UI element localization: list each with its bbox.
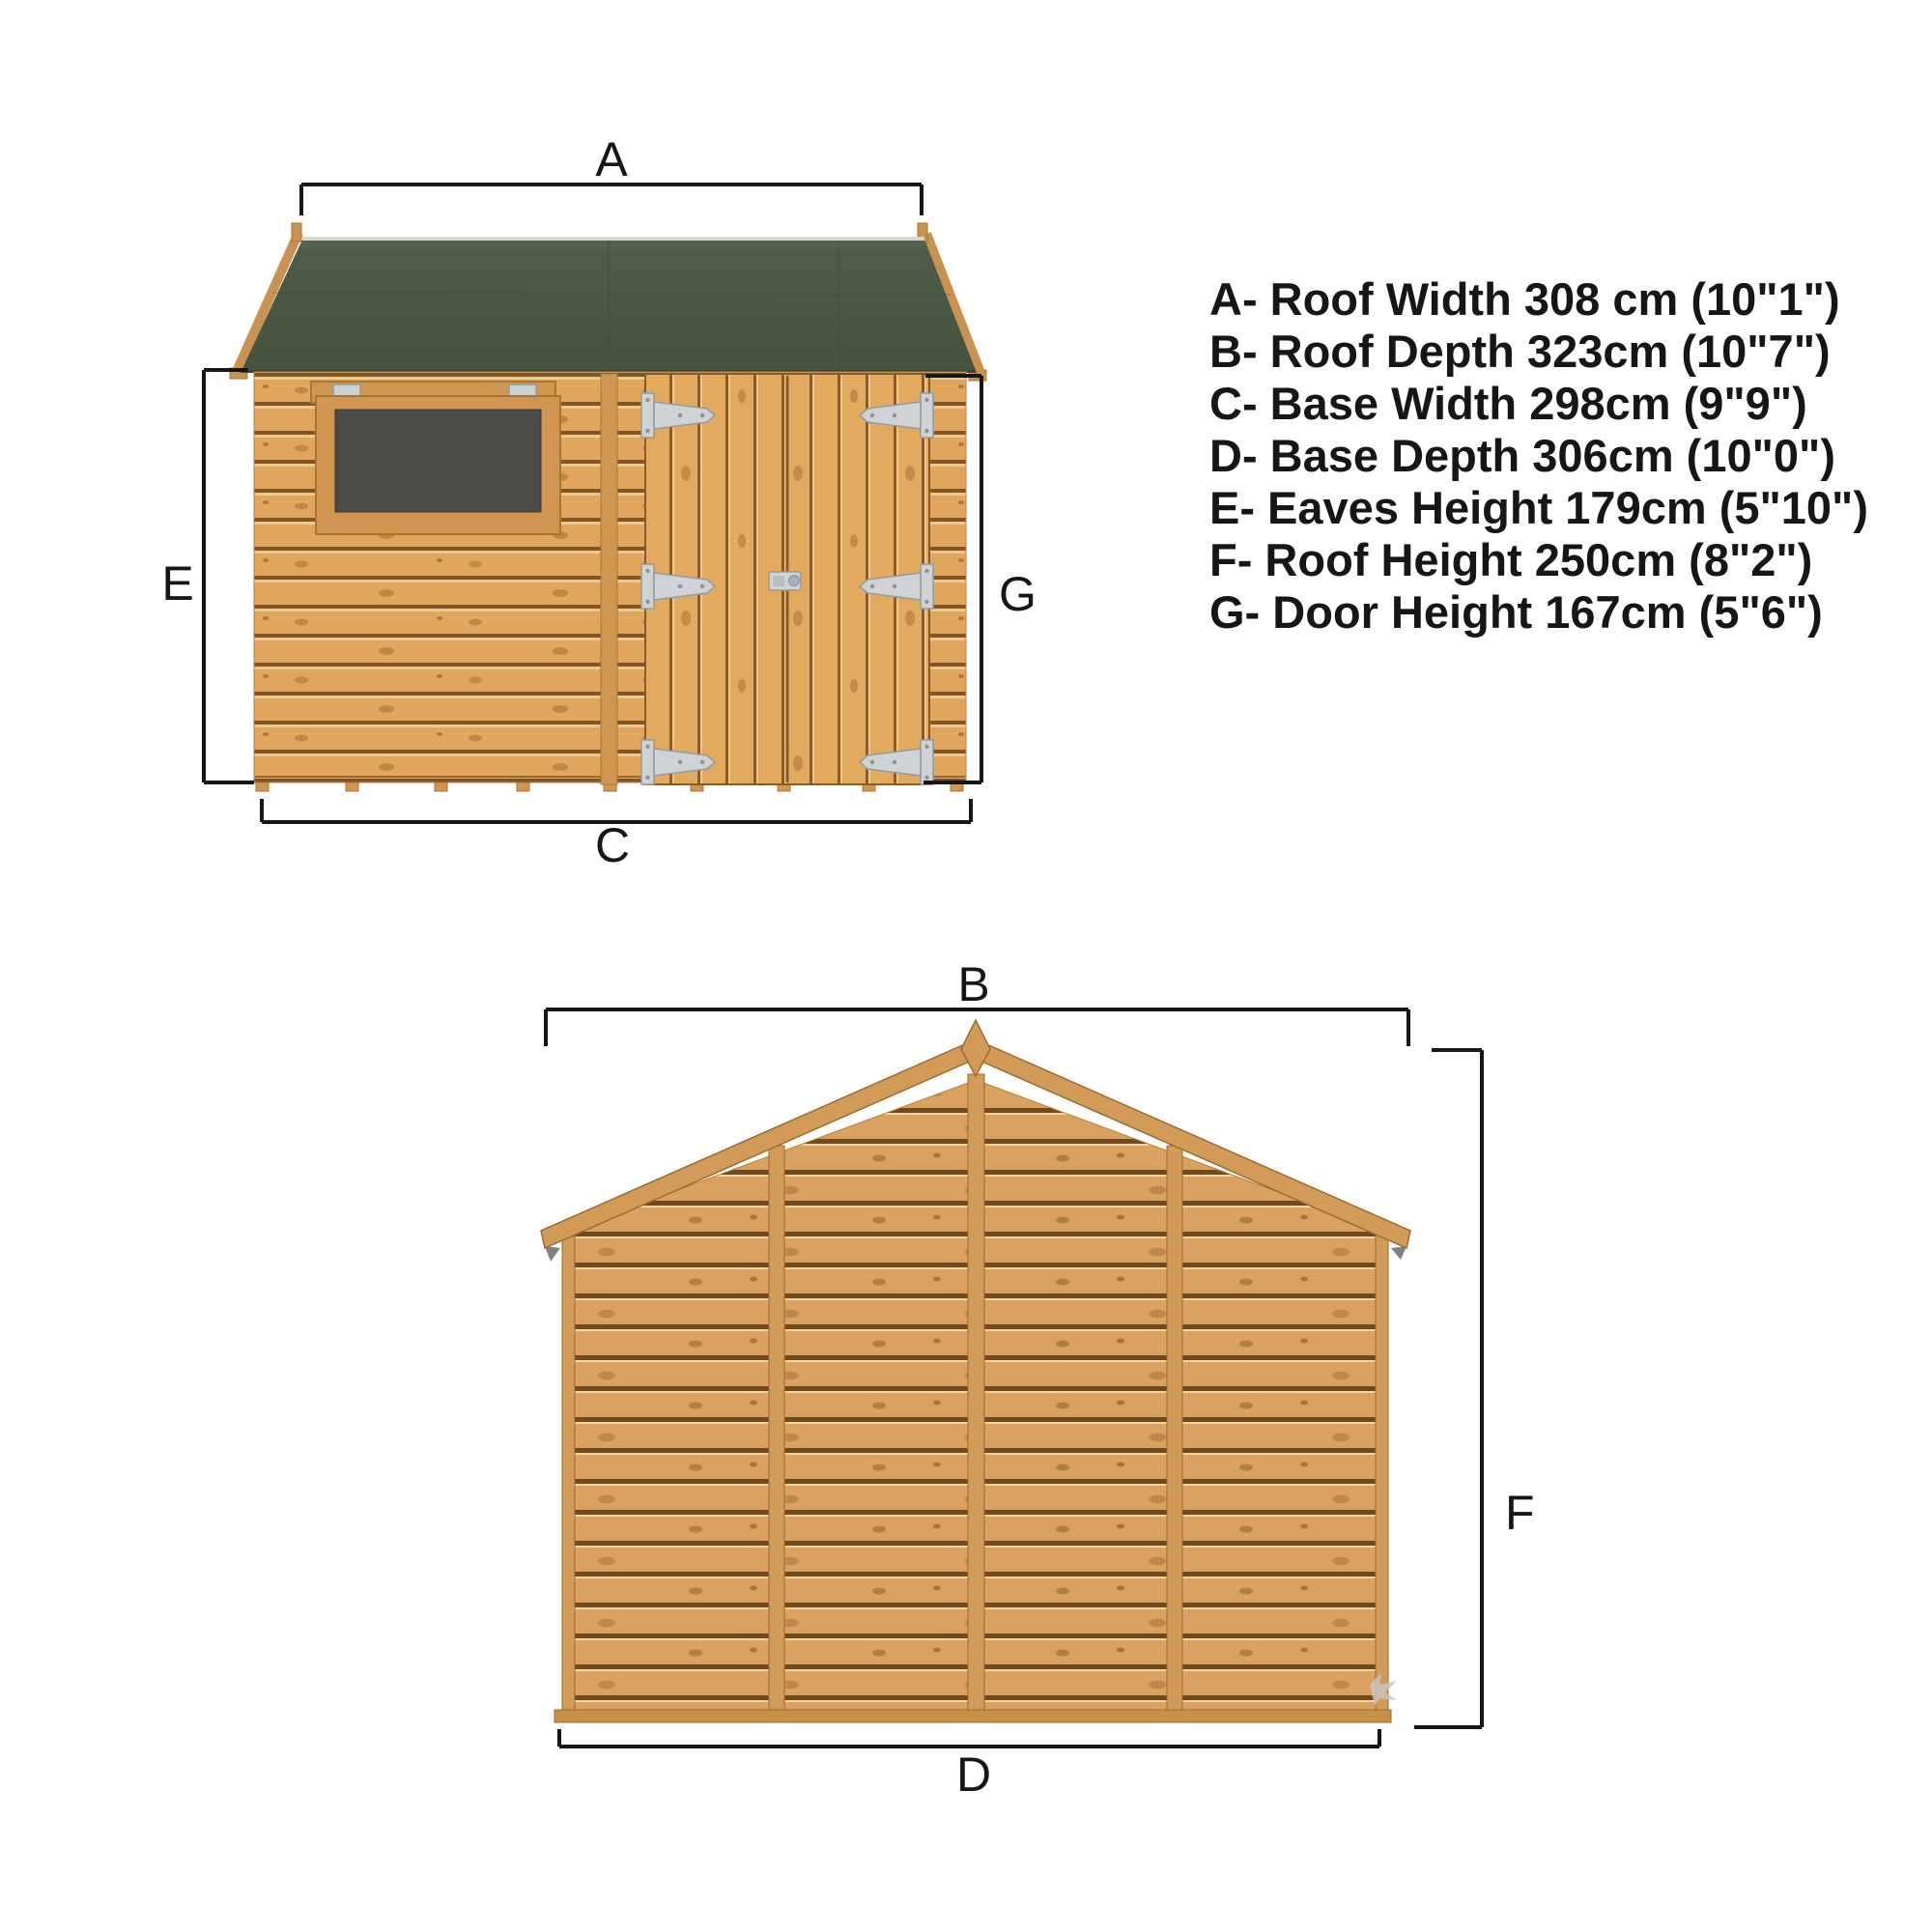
- legend-line-roof-height: F- Roof Height 250cm (8"2"): [1209, 534, 1905, 586]
- base-rail: [554, 1710, 1391, 1722]
- dimension-legend: A- Roof Width 308 cm (10"1") B- Roof Dep…: [1209, 273, 1905, 639]
- front-elevation: A E G C: [161, 132, 1037, 872]
- front-doors: [601, 374, 933, 784]
- apex-finial: [961, 1020, 990, 1076]
- front-window: [311, 382, 560, 534]
- dim-line-roof-height: [1414, 1050, 1482, 1727]
- dim-label-roof-height: F: [1505, 1486, 1535, 1540]
- dim-line-base-depth: [559, 1729, 1379, 1747]
- dim-label-base-depth: D: [956, 1747, 991, 1802]
- batten-left: [769, 1146, 784, 1710]
- window-glazing: [335, 410, 541, 512]
- dim-label-base-width: C: [595, 818, 630, 872]
- dim-line-eaves-height: [204, 370, 254, 782]
- dim-line-roof-width: [301, 185, 922, 215]
- side-elevation: B F D: [541, 957, 1535, 1802]
- diagram-stage: A E G C: [0, 0, 1932, 1932]
- dim-label-roof-depth: B: [957, 957, 989, 1011]
- door-frame-post: [601, 374, 617, 784]
- batten-right: [1167, 1146, 1182, 1710]
- corner-trim-left: [562, 1235, 575, 1710]
- dim-label-roof-width: A: [595, 132, 628, 186]
- legend-line-door-height: G- Door Height 167cm (5"6"): [1209, 586, 1905, 639]
- roof-underside-shadow-right: [1391, 1246, 1406, 1260]
- finial-left: [292, 223, 301, 241]
- dim-label-eaves-height: E: [161, 556, 193, 611]
- legend-line-roof-width: A- Roof Width 308 cm (10"1"): [1209, 273, 1905, 326]
- legend-line-roof-depth: B- Roof Depth 323cm (10"7"): [1209, 326, 1905, 378]
- batten-centre: [968, 1074, 984, 1710]
- legend-line-base-width: C- Base Width 298cm (9"9"): [1209, 378, 1905, 430]
- front-roof: [230, 223, 986, 381]
- door-latch: [769, 572, 801, 590]
- roof-underside-shadow-left: [545, 1246, 560, 1262]
- dim-label-door-height: G: [999, 567, 1037, 621]
- legend-line-base-depth: D- Base Depth 306cm (10"0"): [1209, 430, 1905, 482]
- legend-line-eaves-height: E- Eaves Height 179cm (5"10"): [1209, 482, 1905, 534]
- corner-trim-right: [1376, 1235, 1388, 1710]
